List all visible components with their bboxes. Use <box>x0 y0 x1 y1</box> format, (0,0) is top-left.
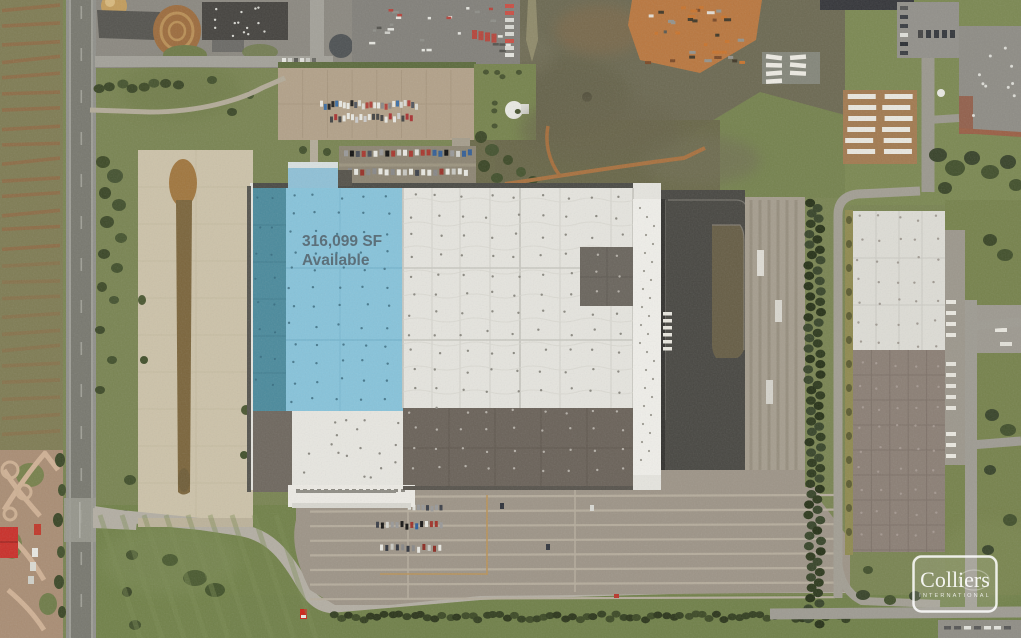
svg-text:Colliers: Colliers <box>920 567 990 592</box>
svg-text:INTERNATIONAL: INTERNATIONAL <box>919 593 991 599</box>
